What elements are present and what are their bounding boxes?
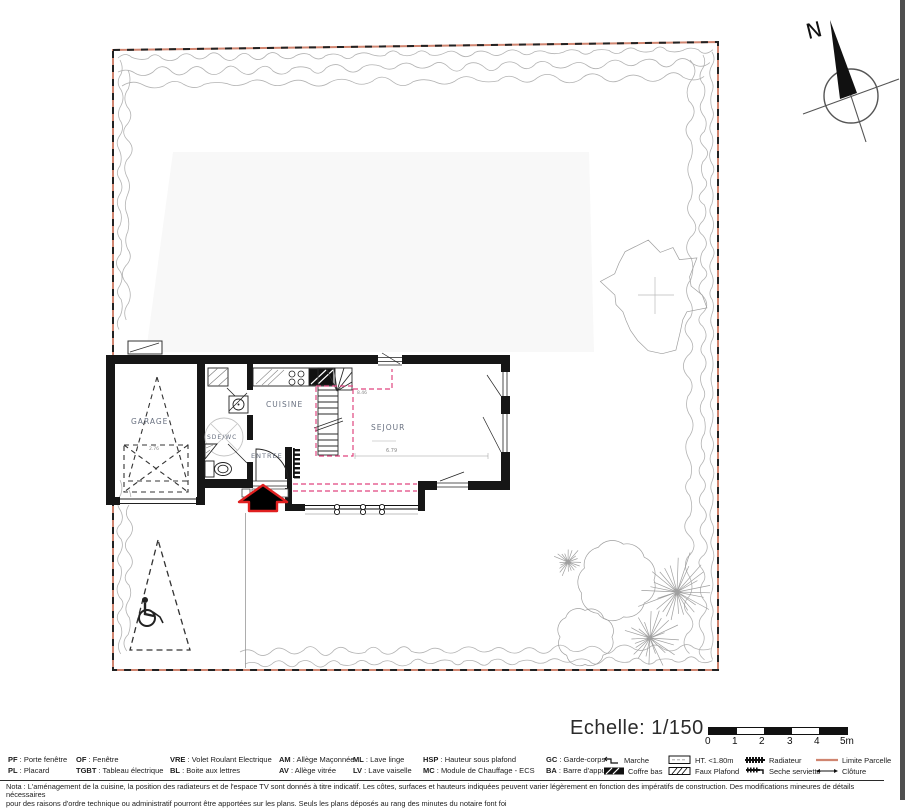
legend-symbol-seche: Seche serviette [744, 766, 821, 776]
roof-projection [146, 152, 594, 352]
legend-entry-pl: PL : Placard [8, 766, 49, 775]
kitchen-counter [253, 368, 335, 386]
marche-icon [603, 755, 621, 765]
north-arrow: N [803, 17, 899, 142]
site-plan-drawing: N [0, 0, 907, 745]
legend: PF : Porte fenêtre OF : Fenêtre VRE : Vo… [0, 753, 900, 779]
house: 6.79 8.46 2.76 GARAGE SDE/WC CUISINE ENT… [106, 353, 510, 515]
page-right-border [900, 0, 905, 800]
corner-hatch [205, 444, 217, 459]
scale-tick: 2 [759, 736, 765, 747]
radiator-icon [293, 448, 300, 478]
legend-entry-ml: ML : Lave linge [353, 755, 404, 764]
wc-bowl [215, 463, 232, 476]
garage-door [120, 497, 196, 505]
legend-entry-lv: LV : Lave vaiselle [353, 766, 412, 775]
legend-entry-pf: PF : Porte fenêtre [8, 755, 67, 764]
legend-entry-am: AM : Allège Maçonnée [279, 755, 354, 764]
label-entree: ENTREE [251, 452, 283, 460]
legend-symbol-marche: Marche [603, 755, 649, 765]
legend-entry-of: OF : Fenêtre [76, 755, 119, 764]
sdewc-fixtures [205, 368, 248, 477]
label-garage: GARAGE [131, 417, 168, 426]
legend-symbol-cloture: Clôture [815, 766, 866, 776]
scale-label: Echelle: 1/150 [570, 717, 704, 740]
scale-bar [708, 727, 848, 735]
legend-entry-ba: BA : Barre d'appui [546, 766, 608, 775]
nota-line2: pour des raisons d'ordre technique ou ad… [6, 800, 884, 808]
legend-entry-bl: BL : Boite aux lettres [170, 766, 240, 775]
legend-symbol-limite: Limite Parcelle [815, 755, 891, 765]
scale-tick: 3 [787, 736, 793, 747]
scale-tick: 0 [705, 736, 711, 747]
plan-canvas: N [0, 0, 907, 745]
legend-entry-gc: GC : Garde-corps [546, 755, 605, 764]
parking-disabled [130, 540, 190, 650]
seche-serviette-icon [744, 766, 766, 776]
tree-starburst [554, 550, 581, 576]
tree-scalloped [558, 609, 614, 666]
scale-tick: 1 [732, 736, 738, 747]
dim-sejour: 6.79 [386, 448, 397, 454]
scale-tick: 4 [814, 736, 820, 747]
legend-entry-hsp: HSP : Hauteur sous plafond [423, 755, 516, 764]
scale-tick: 5m [840, 736, 854, 747]
limite-parcelle-icon [815, 755, 839, 765]
garage-markings [124, 377, 188, 492]
label-sdewc: SDE/WC [207, 434, 237, 441]
legend-entry-tgbt: TGBT : Tableau électrique [76, 766, 163, 775]
nota-text: Nota : L'aménagement de la cuisine, la p… [6, 783, 884, 808]
nota-separator [0, 780, 884, 781]
wc-cistern [205, 461, 214, 477]
cloture-icon [815, 766, 839, 776]
tree-starburst [638, 553, 710, 621]
north-needle [830, 20, 857, 99]
windows [378, 353, 510, 490]
legend-symbol-coffre: Coffre bas [603, 766, 662, 776]
legend-entry-av: AV : Allège vitrée [279, 766, 336, 775]
canopy [128, 341, 162, 354]
nota-line1: Nota : L'aménagement de la cuisine, la p… [6, 783, 884, 800]
north-label: N [804, 17, 825, 44]
radiateur-icon [744, 755, 766, 765]
faux-plafond-icon [668, 766, 692, 776]
ht-icon [668, 755, 692, 765]
coffre-bas-icon [603, 766, 625, 776]
legend-symbol-fauxplafond: Faux Plafond [668, 766, 739, 776]
bay-window [305, 504, 418, 515]
dim-stair: 8.46 [357, 390, 367, 396]
tree-starburst [625, 611, 679, 666]
site-plan-page: { "north": { "label": "N" }, "plan": { "… [0, 0, 907, 800]
wheelchair-icon [139, 597, 163, 626]
legend-entry-mc: MC : Module de Chauffage - ECS [423, 766, 535, 775]
legend-entry-vre: VRE : Volet Roulant Electrique [170, 755, 272, 764]
dim-garage: 2.76 [149, 446, 159, 452]
legend-symbol-radiateur: Radiateur [744, 755, 802, 765]
label-sejour: SEJOUR [371, 423, 405, 432]
label-cuisine: CUISINE [266, 400, 303, 409]
legend-symbol-ht: HT. <1.80m [668, 755, 734, 765]
